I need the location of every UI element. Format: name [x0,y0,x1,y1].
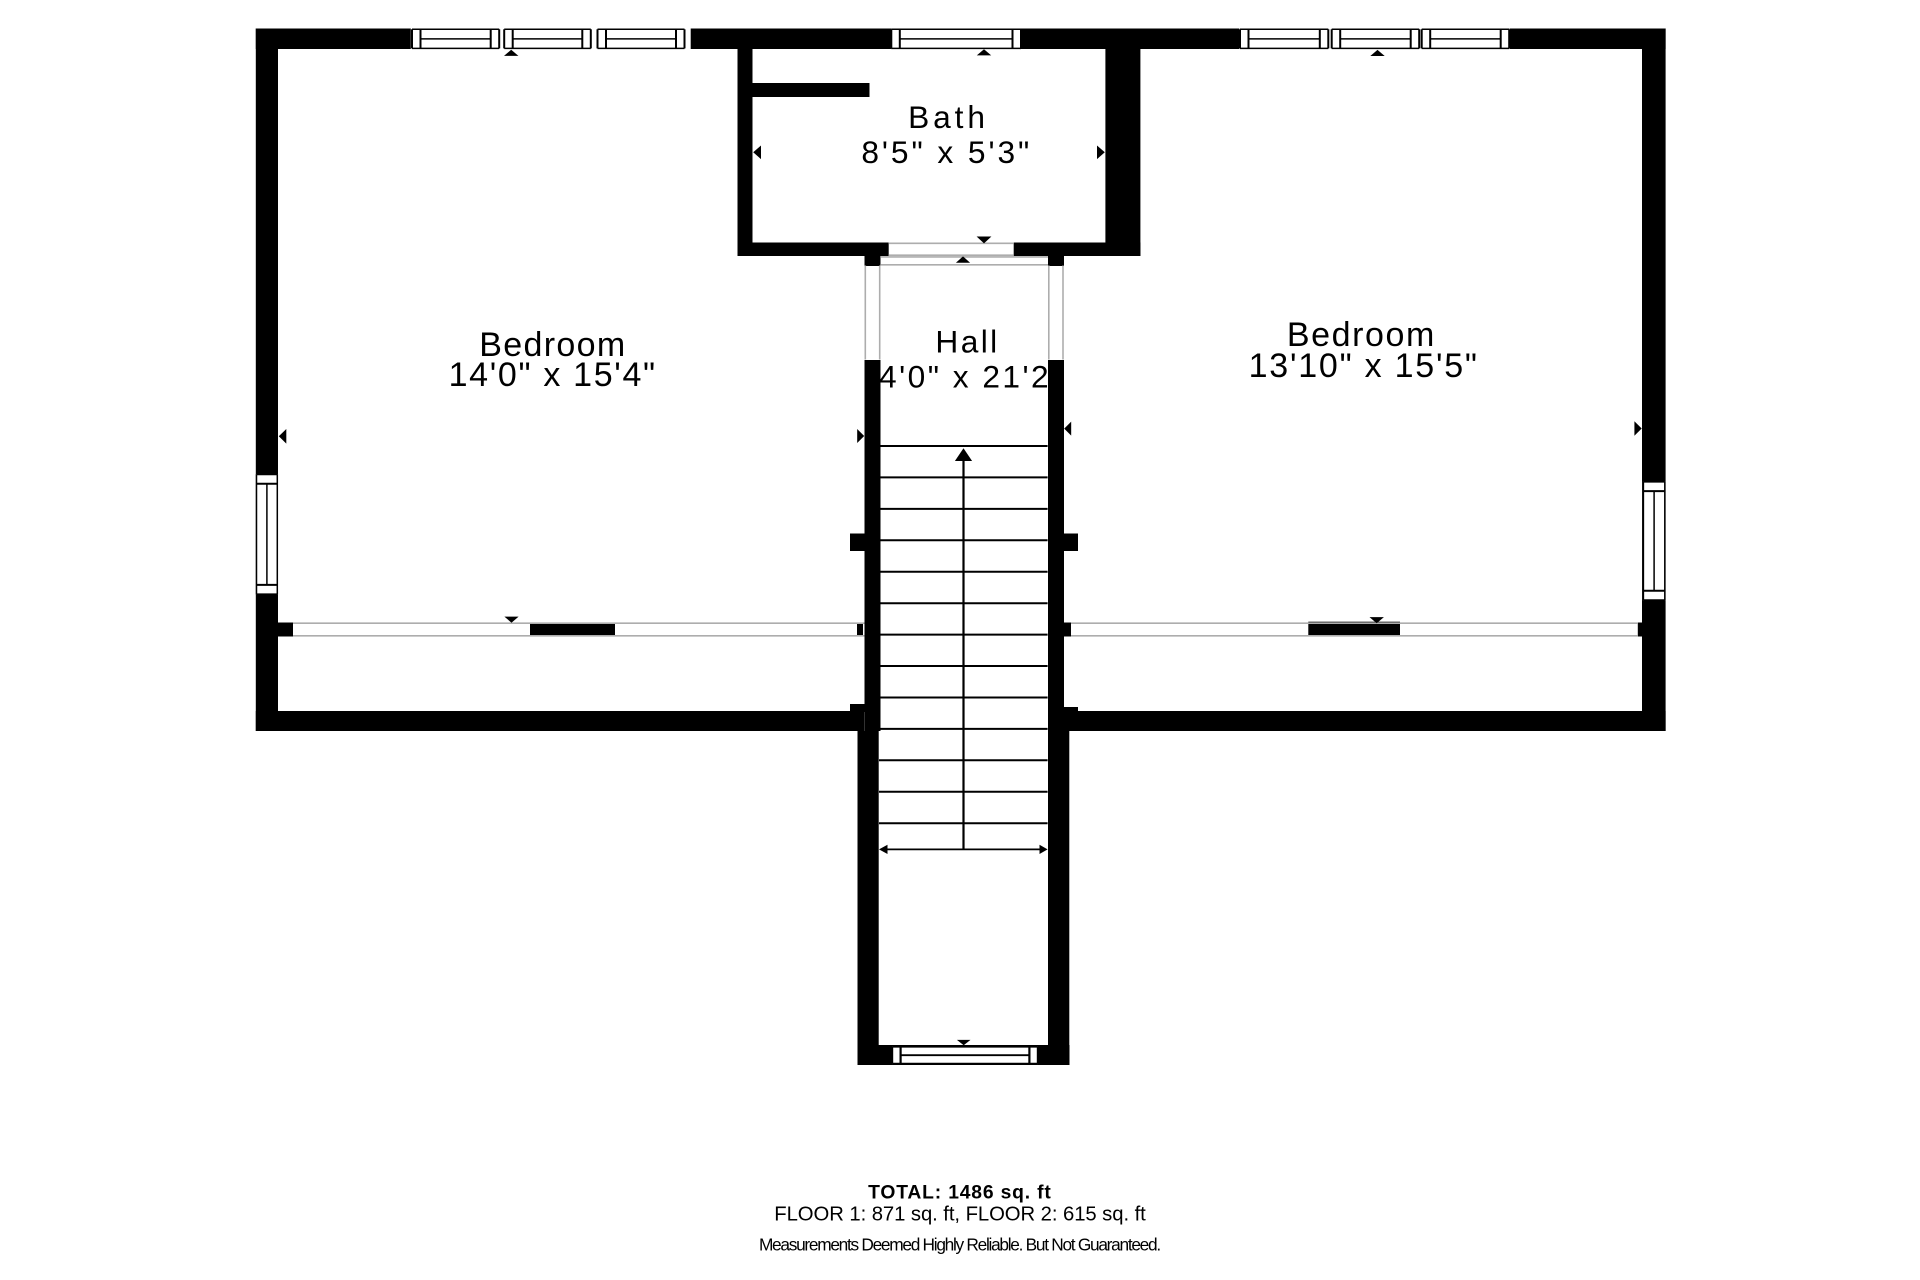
svg-text:Hall: Hall [935,324,999,360]
svg-text:8'5" x 5'3": 8'5" x 5'3" [861,134,1032,170]
svg-text:FLOOR 1: 871 sq. ft, FLOOR 2:: FLOOR 1: 871 sq. ft, FLOOR 2: 615 sq. ft [774,1203,1146,1225]
svg-text:4'0" x 21'2: 4'0" x 21'2 [879,359,1051,395]
svg-text:TOTAL: 1486 sq. ft: TOTAL: 1486 sq. ft [868,1183,1052,1204]
svg-text:Bath: Bath [908,99,989,135]
svg-text:14'0" x 15'4": 14'0" x 15'4" [449,356,657,394]
svg-text:Measurements Deemed Highly Rel: Measurements Deemed Highly Reliable. But… [759,1235,1160,1255]
svg-text:13'10" x 15'5": 13'10" x 15'5" [1249,347,1479,385]
